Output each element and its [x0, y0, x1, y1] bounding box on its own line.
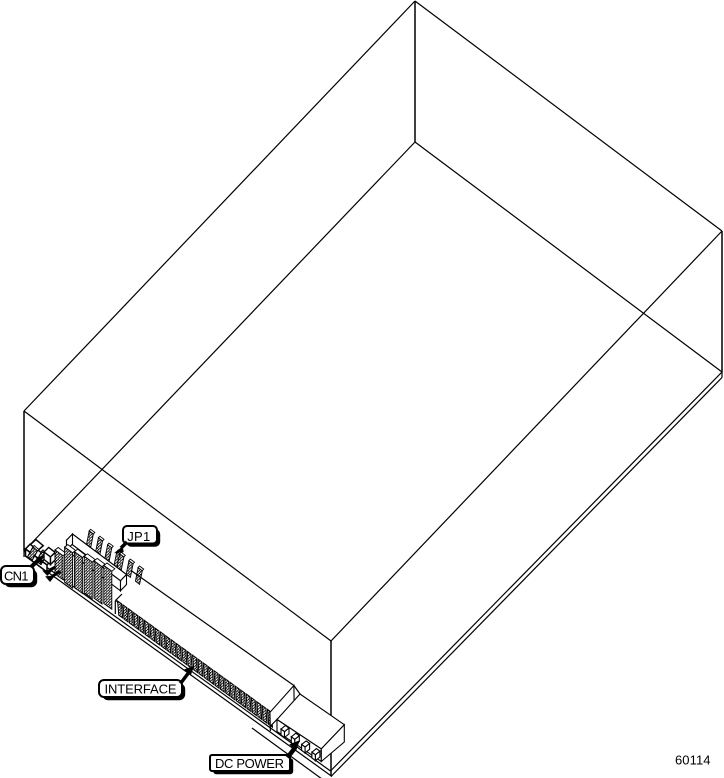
- svg-text:60114: 60114: [675, 753, 711, 768]
- svg-text:CN1: CN1: [4, 569, 29, 584]
- svg-text:JP1: JP1: [127, 529, 150, 544]
- svg-text:DC POWER: DC POWER: [215, 756, 284, 771]
- svg-text:INTERFACE: INTERFACE: [105, 682, 177, 697]
